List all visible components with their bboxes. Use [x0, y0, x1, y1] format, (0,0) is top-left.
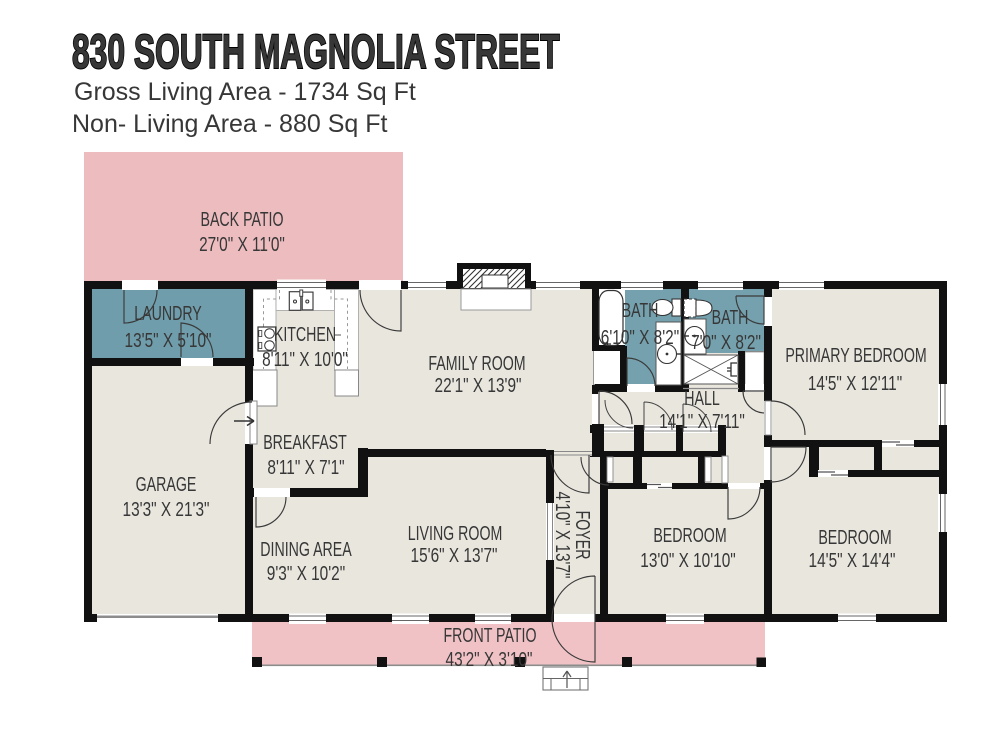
svg-text:BACK PATIO: BACK PATIO [200, 208, 283, 231]
svg-text:GARAGE: GARAGE [136, 473, 197, 496]
svg-text:HALL: HALL [684, 387, 720, 410]
svg-text:FAMILY ROOM: FAMILY ROOM [428, 352, 525, 375]
svg-text:4'10" X 13'7": 4'10" X 13'7" [552, 492, 574, 579]
svg-text:Non- Living Area - 880 Sq Ft: Non- Living Area - 880 Sq Ft [72, 110, 387, 138]
svg-text:13'3" X 21'3": 13'3" X 21'3" [123, 498, 210, 520]
svg-text:9'3" X 10'2": 9'3" X 10'2" [267, 562, 345, 584]
svg-text:DINING AREA: DINING AREA [260, 538, 352, 561]
svg-text:43'2" X 3'10": 43'2" X 3'10" [446, 648, 533, 670]
svg-text:27'0" X 11'0": 27'0" X 11'0" [199, 233, 285, 255]
svg-text:830 SOUTH MAGNOLIA STREET: 830 SOUTH MAGNOLIA STREET [72, 24, 560, 78]
svg-text:22'1" X 13'9": 22'1" X 13'9" [435, 374, 522, 396]
svg-text:PRIMARY BEDROOM: PRIMARY BEDROOM [785, 344, 926, 367]
svg-text:6'10" X 8'2": 6'10" X 8'2" [601, 326, 679, 348]
svg-text:Gross Living Area - 1734 Sq Ft: Gross Living Area - 1734 Sq Ft [74, 78, 416, 106]
svg-text:14'5" X 12'11": 14'5" X 12'11" [808, 372, 902, 394]
svg-text:13'0" X 10'10": 13'0" X 10'10" [640, 549, 735, 571]
svg-text:BEDROOM: BEDROOM [818, 526, 891, 549]
svg-text:LAUNDRY: LAUNDRY [134, 302, 202, 325]
svg-text:14'5" X 14'4": 14'5" X 14'4" [809, 549, 896, 571]
svg-text:BREAKFAST: BREAKFAST [263, 431, 347, 454]
svg-text:FRONT PATIO: FRONT PATIO [443, 624, 536, 647]
svg-text:BATH: BATH [712, 306, 749, 329]
svg-text:KITCHEN: KITCHEN [274, 323, 336, 346]
svg-text:LIVING ROOM: LIVING ROOM [408, 522, 503, 545]
svg-text:8'11" X 10'0": 8'11" X 10'0" [262, 348, 348, 370]
svg-text:8'11" X 7'1": 8'11" X 7'1" [267, 456, 344, 478]
svg-text:BEDROOM: BEDROOM [653, 524, 726, 547]
svg-text:13'5" X 5'10": 13'5" X 5'10" [125, 329, 212, 351]
svg-text:15'6" X 13'7": 15'6" X 13'7" [411, 544, 498, 566]
svg-text:7'0" X 8'2": 7'0" X 8'2" [691, 331, 761, 353]
svg-text:14'1" X 7'11": 14'1" X 7'11" [659, 410, 745, 432]
svg-text:BATH: BATH [622, 299, 659, 322]
